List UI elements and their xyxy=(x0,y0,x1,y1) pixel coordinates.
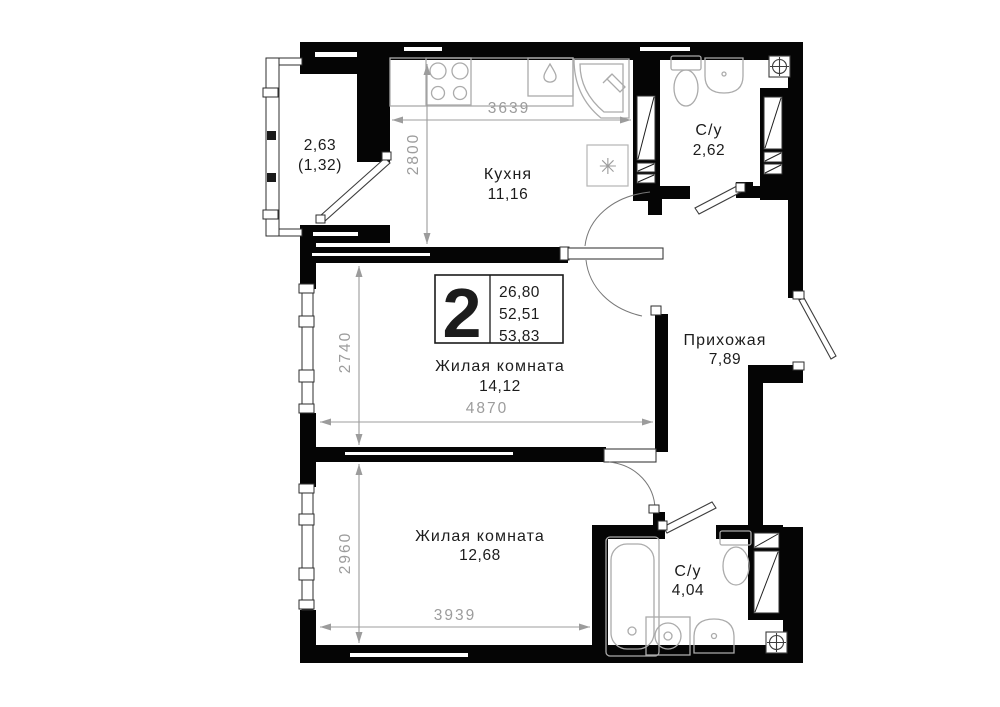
dim-living-room-1-depth-label: 2740 xyxy=(337,331,354,373)
kitchen-area: 11,16 xyxy=(488,186,529,203)
bathroom-bottom-door xyxy=(658,502,716,533)
floor-plan: ✳ xyxy=(0,0,1000,707)
living-room-1-window xyxy=(299,284,314,413)
bathroom-bottom-area: 4,04 xyxy=(672,582,705,599)
dim-living-room-1-width-label: 4870 xyxy=(466,400,508,417)
vent-shaft-bottom xyxy=(754,533,779,613)
living-room-2-door xyxy=(604,449,659,513)
stove xyxy=(426,58,471,105)
badge-area-2: 52,51 xyxy=(499,306,540,323)
living-room-1-area: 14,12 xyxy=(479,378,521,395)
label-balcony: 2,63 (1,32) xyxy=(298,137,342,174)
hallway-name: Прихожая xyxy=(684,332,767,349)
dim-living-room-2-width-label: 3939 xyxy=(434,607,476,624)
kitchen-door xyxy=(560,192,663,260)
living-room-2-area: 12,68 xyxy=(459,547,501,564)
living-room-1-name: Жилая комната xyxy=(435,358,565,375)
dim-kitchen-depth: 2800 xyxy=(405,64,431,244)
fridge-icon: ✳ xyxy=(587,145,628,186)
badge-rooms-count: 2 xyxy=(443,274,482,352)
entry-door xyxy=(793,291,836,370)
dim-living-room-2-depth: 2960 xyxy=(337,464,363,643)
label-living-room-2: Жилая комната 12,68 xyxy=(415,528,545,564)
floor-drain-icon-bottom xyxy=(766,632,787,653)
vent-shaft-top-left xyxy=(637,96,655,183)
badge-area-3: 53,83 xyxy=(499,328,540,345)
living-room-2-name: Жилая комната xyxy=(415,528,545,545)
plan-type-badge: 2 26,80 52,51 53,83 xyxy=(435,274,563,352)
label-hallway: Прихожая 7,89 xyxy=(684,332,767,368)
bathroom-bottom-name: С/у xyxy=(674,563,701,580)
hallway-area: 7,89 xyxy=(709,351,742,368)
dim-kitchen-depth-label: 2800 xyxy=(405,133,422,175)
balcony-glazing xyxy=(263,58,302,236)
label-living-room-1: Жилая комната 14,12 xyxy=(435,358,565,395)
dim-living-room-2-depth-label: 2960 xyxy=(337,532,354,574)
label-bathroom-bottom: С/у 4,04 xyxy=(672,563,705,599)
floor-drain-icon-top xyxy=(769,56,790,77)
floor-plan-drawing: ✳ xyxy=(0,0,1000,707)
badge-area-1: 26,80 xyxy=(499,284,540,301)
balcony-area: 2,63 xyxy=(304,137,337,154)
dim-living-room-2-width: 3939 xyxy=(320,607,590,631)
corner-worktop xyxy=(574,59,629,118)
bathroom-top-area: 2,62 xyxy=(693,142,726,159)
bathroom-top-door xyxy=(695,183,745,214)
living-room-1-door-arc xyxy=(586,260,661,316)
kitchen-name: Кухня xyxy=(484,166,532,183)
toilet-bottom xyxy=(720,531,751,585)
living-room-2-window xyxy=(299,484,314,610)
toilet-top xyxy=(671,56,701,106)
washbasin-top xyxy=(705,58,743,93)
dim-living-room-1-width: 4870 xyxy=(320,400,653,426)
bathroom-top-name: С/у xyxy=(695,122,722,139)
balcony-area-secondary: (1,32) xyxy=(298,157,342,174)
kitchen-sink xyxy=(528,58,573,96)
fridge-glyph: ✳ xyxy=(599,154,617,179)
dim-living-room-1-depth: 2740 xyxy=(337,266,363,445)
dim-kitchen-width-label: 3639 xyxy=(488,100,530,117)
bathtub xyxy=(606,537,659,656)
label-bathroom-top: С/у 2,62 xyxy=(693,122,726,159)
kitchen-counter xyxy=(390,58,573,106)
vent-shaft-top-right xyxy=(764,97,782,174)
label-kitchen: Кухня 11,16 xyxy=(484,166,532,203)
